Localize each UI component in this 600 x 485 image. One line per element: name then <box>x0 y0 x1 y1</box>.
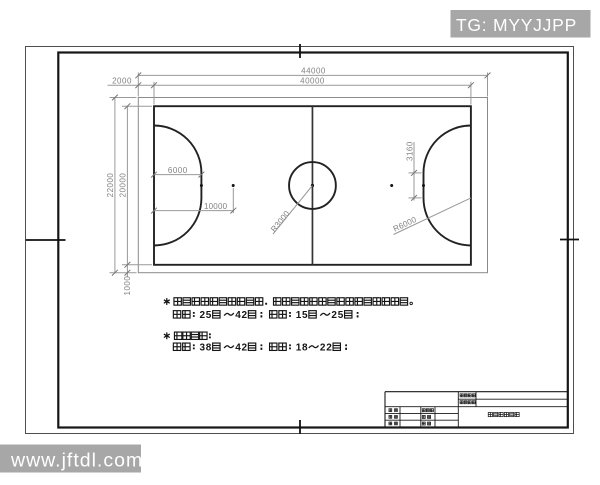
svg-text:44000: 44000 <box>301 67 326 76</box>
svg-text:22000: 22000 <box>106 173 115 198</box>
svg-text:3160: 3160 <box>406 141 415 161</box>
svg-text:25: 25 <box>200 310 213 321</box>
svg-text:40000: 40000 <box>300 76 325 85</box>
svg-text:42: 42 <box>235 310 248 321</box>
svg-text:25: 25 <box>331 310 344 321</box>
svg-text:2000: 2000 <box>112 76 132 85</box>
svg-text:38: 38 <box>200 342 213 353</box>
svg-text:15: 15 <box>296 310 309 321</box>
svg-text:18: 18 <box>296 342 309 353</box>
svg-text:1000: 1000 <box>123 276 132 296</box>
svg-text:22: 22 <box>320 342 333 353</box>
svg-text:6000: 6000 <box>168 166 188 175</box>
svg-text:42: 42 <box>235 342 248 353</box>
svg-text:20000: 20000 <box>119 173 128 198</box>
svg-text:TG: MYYJJPP: TG: MYYJJPP <box>456 15 577 35</box>
svg-text:10000: 10000 <box>204 202 228 211</box>
svg-text:www.jftdl.com: www.jftdl.com <box>10 450 143 472</box>
